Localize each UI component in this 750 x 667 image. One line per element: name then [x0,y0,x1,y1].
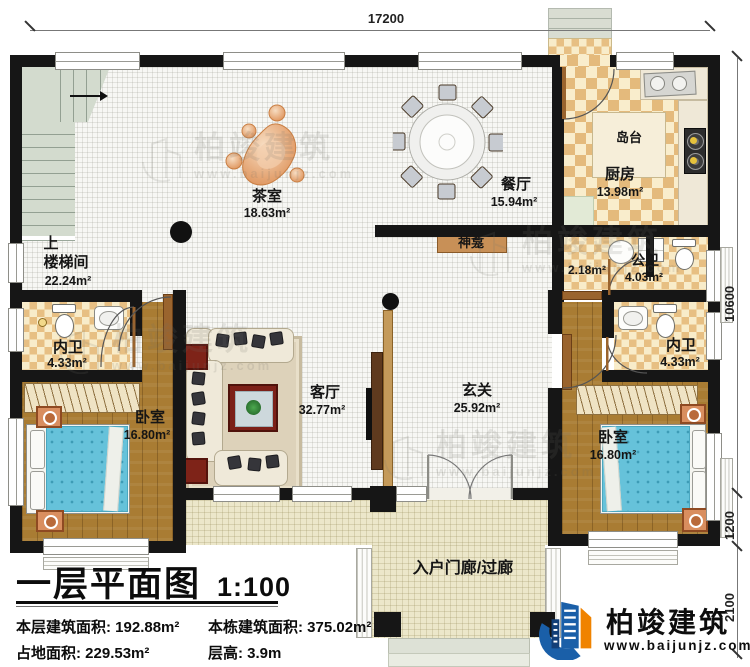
toilet-tank-icon [653,304,677,313]
stair-landing [22,67,48,122]
kitchen-entry-steps [548,8,612,40]
room-label-bed-left: 卧室 [135,410,165,427]
area-label-dining: 15.94m² [491,196,538,210]
dimension-line-right [737,58,738,658]
label-island: 岛台 [616,131,642,145]
sofa-cushion [251,334,266,349]
sofa-cushion [191,371,205,385]
dimension-line-top [30,30,710,31]
title-underline-thin [16,606,278,607]
french-door [427,454,513,500]
toilet-tank-icon [672,239,696,247]
wall-segment [548,302,562,334]
window [8,418,24,506]
toilet-bowl-icon [55,314,74,338]
plant [246,400,261,415]
nightstand [680,404,706,424]
window [8,243,24,283]
window [588,531,678,548]
wall-segment [548,388,562,534]
sofa-cushion [215,333,230,348]
door-arc [118,296,172,352]
label-shrine: 神龛 [458,236,484,250]
side-table [184,458,208,484]
toilet-tank-icon [52,304,76,313]
pillow [30,471,45,510]
window [55,52,140,70]
plan-title: 一层平面图 [16,565,201,604]
page-title: 一层平面图1:100 [16,556,291,607]
dimension-top-width: 17200 [368,11,404,26]
stair-arrow-head [100,91,108,101]
kitchen-door-threshold [556,55,612,67]
window [396,486,427,502]
wall-segment [22,290,130,302]
wall-segment [140,55,223,67]
sink-icon [618,306,648,330]
dimension-right-bay: 1200 [722,511,737,540]
partition-screen [383,310,393,490]
wall-pier [370,486,396,512]
bay-window-sill [588,550,678,565]
room-label-porch: 入户门廊/过廊 [413,560,513,578]
porch-step [388,638,530,654]
room-label-bath-left: 内卫 [53,340,83,357]
sofa-cushion [191,391,206,406]
area-label-bed-left: 16.80m² [124,429,171,443]
lamp-pull-icon [38,318,47,327]
room-label-bath-right: 内卫 [666,338,696,355]
stair-direction-label: 上 [43,236,58,253]
wall-segment [375,225,720,237]
room-label-dining: 餐厅 [501,177,531,194]
room-label-kitchen: 厨房 [605,167,635,184]
stat-building-area: 本栋建筑面积: 375.02m² [208,616,371,637]
stair-direction-arrow [70,95,100,97]
sofa-cushion [233,331,247,345]
sofa-cushion [227,455,242,470]
room-label-tea: 茶室 [252,189,282,206]
area-label-stair: 22.24m² [45,275,92,289]
porch-step [388,653,530,667]
tv-icon [366,388,372,440]
window [292,486,352,502]
brand-logo-icon [536,596,602,660]
pillow [30,430,45,469]
room-label-living: 客厅 [310,385,340,402]
nightstand [36,510,64,532]
window [213,486,280,502]
burner-flame [690,157,697,164]
room-label-bed-right: 卧室 [598,430,628,447]
area-label-bath-left: 4.33m² [47,357,87,371]
kitchen-sink-bowl [650,76,665,91]
door-leaf [562,291,602,300]
door-arc [562,67,616,121]
stat-storey-height: 层高: 3.9m [208,642,281,663]
area-label-bath-right: 4.33m² [660,356,700,370]
window [418,52,522,70]
wall-segment [280,488,292,500]
wall-segment [352,488,370,500]
pillow [692,471,706,510]
toilet-bowl-icon [675,248,694,270]
window [223,52,345,70]
porch-column [374,612,401,637]
burner-flame [690,137,697,144]
nightstand [682,508,708,532]
brand-url: www.baijunjz.com [604,638,750,653]
stair-main-flight [22,122,75,238]
area-label-bed-right: 16.80m² [590,449,637,463]
area-label-public-bath-ante: 2.18m² [568,264,606,277]
wall-segment [548,290,562,302]
stat-site-area: 占地面积: 229.53m² [16,642,149,663]
dimension-right-height: 10600 [722,286,737,322]
column [382,293,399,310]
area-label-tea: 18.63m² [244,207,291,221]
tea-stone-decor [225,103,309,195]
floor-plan: 上 楼梯间 22.24m² 茶室 18.63m² 餐厅 15.94m² 厨房 1… [0,0,750,667]
wall-segment [173,290,186,541]
nightstand [36,406,62,428]
area-label-foyer: 25.92m² [454,402,501,416]
side-table [184,344,208,370]
title-underline [16,601,278,604]
brand-name: 柏竣建筑 [606,601,730,641]
room-label-public-bath: 公卫 [631,253,659,268]
dining-table-set [393,78,503,206]
sofa-cushion [247,457,261,471]
wall-segment [22,370,142,382]
tv-panel [371,352,383,470]
toilet-bowl-icon [656,314,675,338]
wall-segment [345,55,418,67]
pillow [692,430,706,469]
column [170,221,192,243]
area-label-kitchen: 13.98m² [597,186,644,200]
window [616,52,674,70]
wall-segment [513,488,548,500]
wall-segment [522,55,560,67]
room-label-foyer: 玄关 [462,383,492,400]
area-label-public-bath: 4.03m² [625,271,663,284]
wall-segment [186,488,213,500]
sofa-cushion [269,331,284,346]
kitchen-sink-bowl [672,76,687,91]
sofa-cushion [191,411,205,425]
area-label-living: 32.77m² [299,404,346,418]
room-label-stair: 楼梯间 [43,255,88,272]
window [43,538,149,555]
window [8,308,24,352]
stat-floor-area: 本层建筑面积: 192.88m² [16,616,179,637]
porch-corridor-floor [186,500,548,545]
wall-segment [602,302,614,338]
sofa-cushion [191,431,205,445]
door-arc [606,336,648,374]
sofa-cushion [265,454,279,468]
plan-scale: 1:100 [217,572,291,602]
